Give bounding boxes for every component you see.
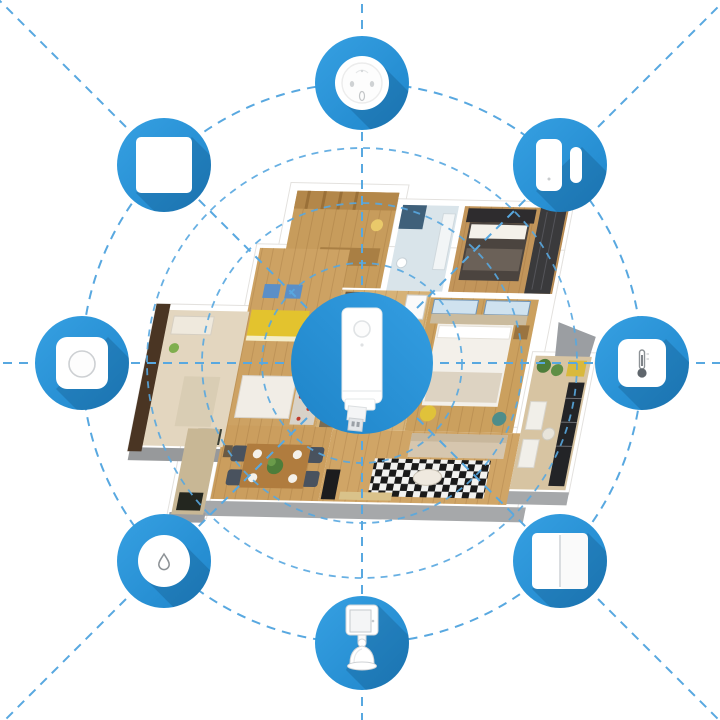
smart-plug-glyph <box>335 56 389 110</box>
temperature-humidity-sensor-icon <box>595 316 720 457</box>
wall-switch-double-glyph <box>532 533 588 589</box>
room-living <box>318 429 520 505</box>
room-dining <box>210 425 333 501</box>
hub-icon <box>291 292 433 434</box>
temperature-humidity-sensor-glyph <box>618 339 666 387</box>
water-leak-sensor-glyph <box>138 535 190 587</box>
water-leak-sensor-icon <box>117 514 252 649</box>
wall-switch-single-icon <box>117 118 262 263</box>
smart-plug-icon <box>315 36 451 172</box>
room-bedroom-main <box>448 206 569 294</box>
diagram-canvas <box>0 0 720 720</box>
diagram-stage <box>0 0 720 720</box>
motion-sensor-icon <box>315 596 448 720</box>
wall-switch-single-glyph <box>136 137 192 193</box>
wireless-mini-switch-glyph <box>56 337 108 389</box>
